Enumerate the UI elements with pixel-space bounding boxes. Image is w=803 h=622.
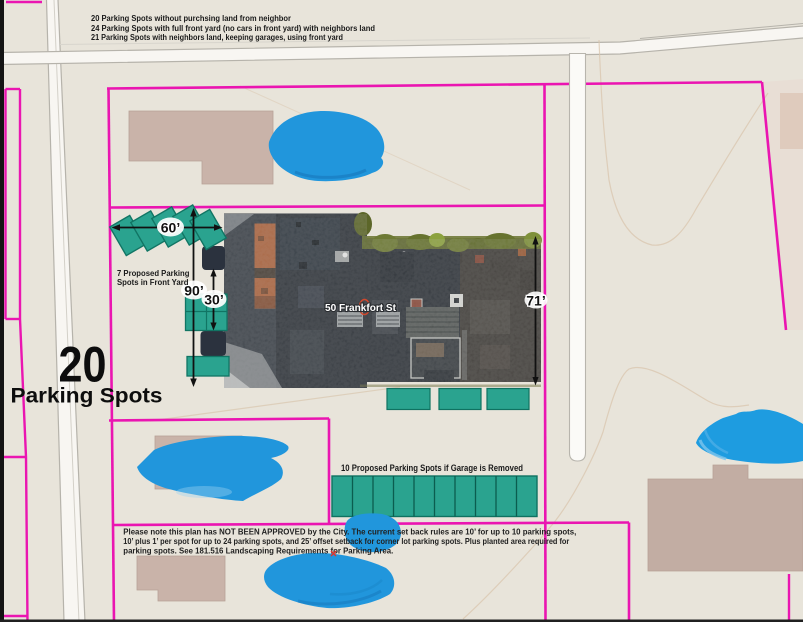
svg-text:60’: 60’ (161, 220, 180, 236)
svg-text:71’: 71’ (526, 293, 545, 309)
svg-text:30’: 30’ (204, 292, 223, 308)
svg-text:21 Parking Spots with neighbor: 21 Parking Spots with neighbors land, ke… (91, 32, 343, 42)
svg-text:20 Parking Spots without purch: 20 Parking Spots without purchsing land … (91, 13, 292, 23)
svg-text:Parking Spots: Parking Spots (11, 385, 163, 408)
svg-text:parking spots. See 181.516 La: parking spots. See 181.516 Landscaping R… (123, 546, 393, 556)
svg-text:50 Frankfort St: 50 Frankfort St (325, 302, 396, 314)
svg-text:10 Proposed Parking Spots if G: 10 Proposed Parking Spots if Garage is R… (341, 463, 523, 473)
svg-text:Spots in Front Yard: Spots in Front Yard (117, 277, 189, 287)
svg-text:10’ plus 1’ per spot for up to: 10’ plus 1’ per spot for up to 24 parkin… (123, 536, 570, 546)
